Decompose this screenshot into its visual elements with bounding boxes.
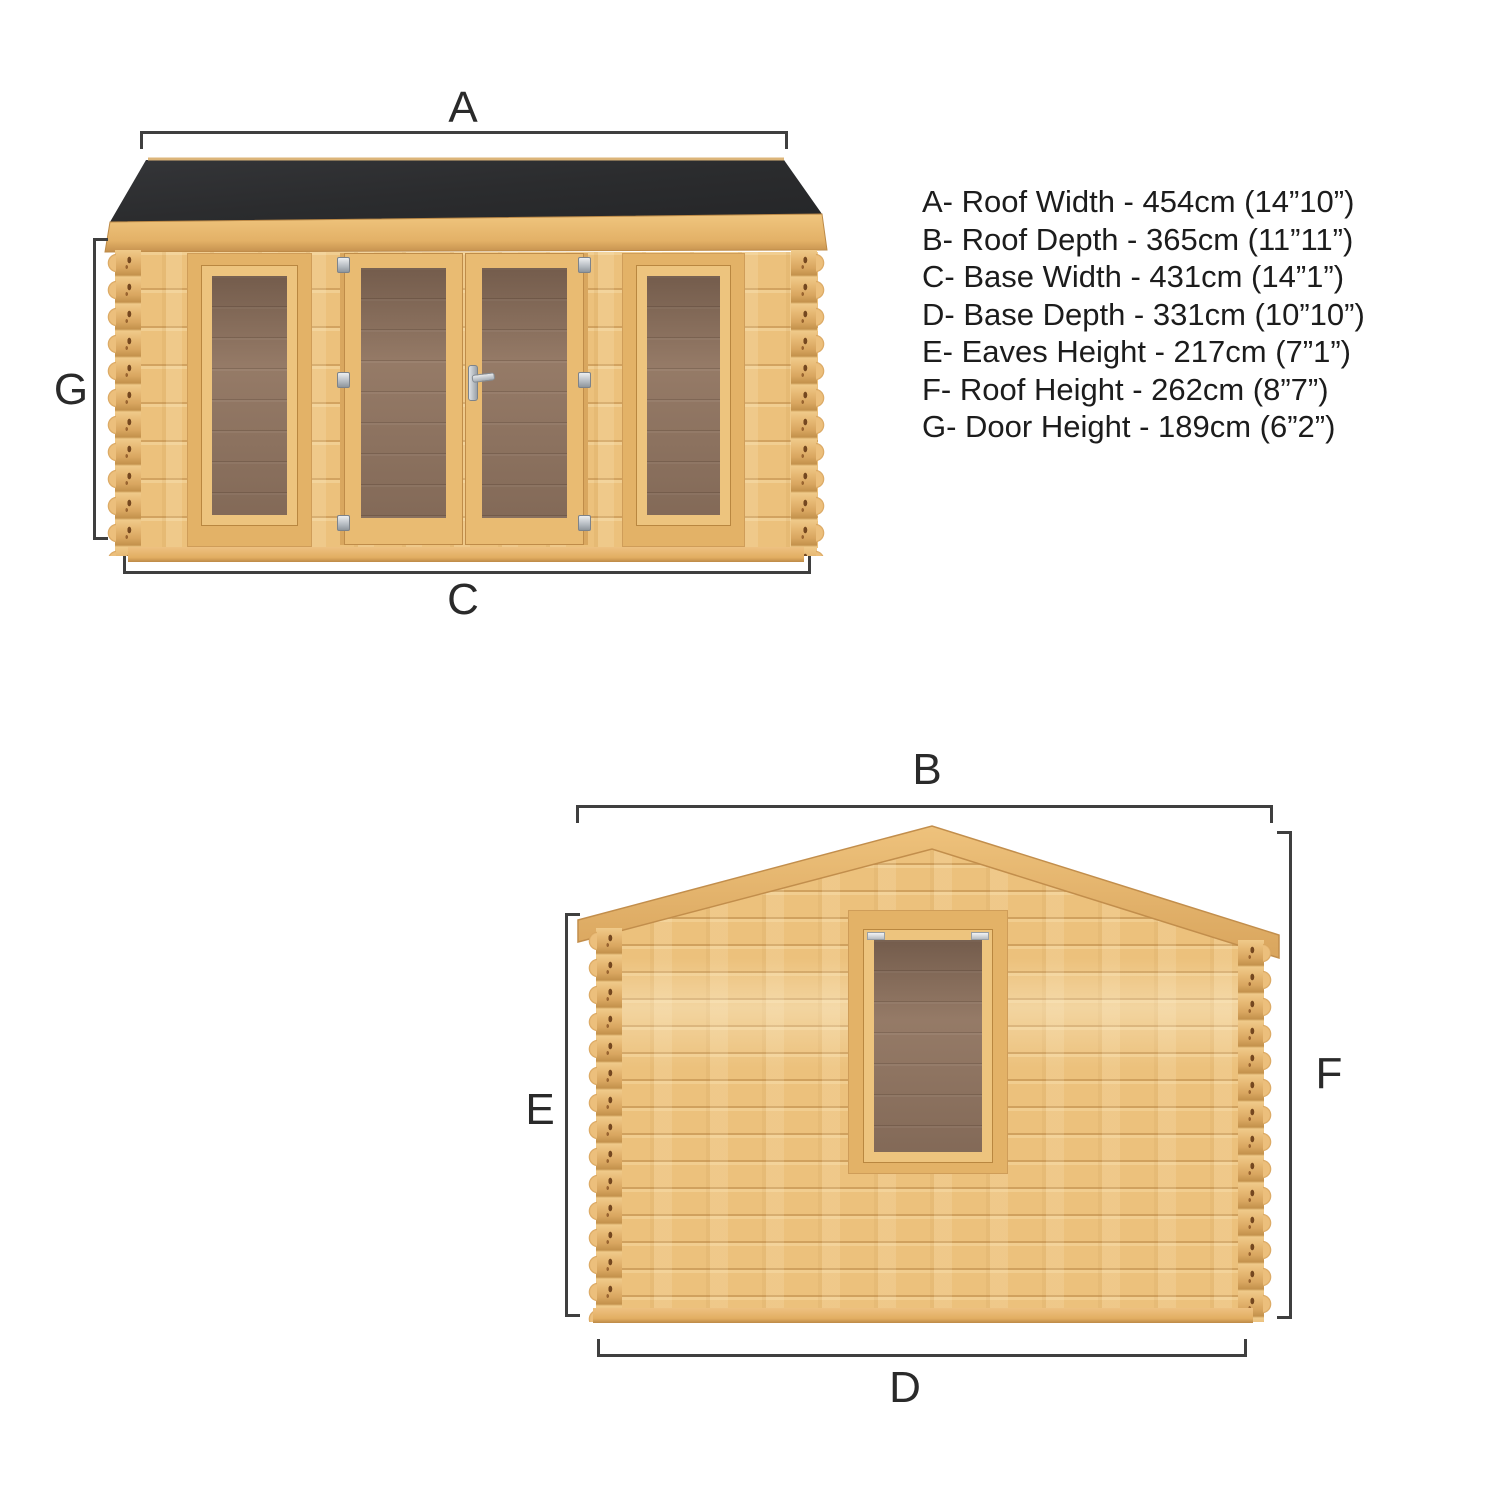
roof-felt-surface bbox=[110, 160, 822, 222]
door-hinge bbox=[337, 257, 350, 273]
side-left-log-corner bbox=[596, 928, 622, 1322]
dim-bracket-g bbox=[93, 238, 111, 540]
double-door-unit bbox=[340, 253, 588, 545]
dim-label-c: C bbox=[436, 578, 490, 622]
dim-label-f: F bbox=[1302, 1052, 1356, 1096]
dim-label-b: B bbox=[900, 748, 954, 792]
front-window-left-sash bbox=[201, 265, 298, 526]
door-handle bbox=[468, 365, 478, 401]
dim-bracket-f bbox=[1274, 831, 1292, 1319]
spec-line-roof-height: F- Roof Height - 262cm (8”7”) bbox=[922, 371, 1462, 409]
spec-line-roof-width: A- Roof Width - 454cm (14”10”) bbox=[922, 183, 1462, 221]
door-leaf-left bbox=[344, 253, 463, 545]
spec-line-eaves-height: E- Eaves Height - 217cm (7”1”) bbox=[922, 333, 1462, 371]
spec-line-base-depth: D- Base Depth - 331cm (10”10”) bbox=[922, 296, 1462, 334]
dim-label-a: A bbox=[436, 86, 490, 130]
dim-label-g: G bbox=[44, 368, 98, 412]
dim-bracket-d bbox=[597, 1339, 1247, 1357]
dim-bracket-a bbox=[140, 131, 788, 149]
door-hinge bbox=[337, 372, 350, 388]
door-leaf-right-glass bbox=[482, 268, 567, 518]
door-leaf-right bbox=[465, 253, 584, 545]
spec-line-base-width: C- Base Width - 431cm (14”1”) bbox=[922, 258, 1462, 296]
spec-line-roof-depth: B- Roof Depth - 365cm (11”11”) bbox=[922, 221, 1462, 259]
side-right-log-corner bbox=[1238, 940, 1264, 1322]
door-hinge bbox=[578, 257, 591, 273]
front-elevation-view: A bbox=[0, 0, 860, 640]
side-window-glass bbox=[874, 940, 982, 1152]
front-window-left bbox=[187, 253, 312, 547]
door-hinge bbox=[578, 372, 591, 388]
side-base-beam bbox=[593, 1308, 1253, 1323]
dim-bracket-e bbox=[565, 913, 583, 1317]
front-left-log-corner bbox=[115, 250, 141, 556]
window-hinge bbox=[867, 932, 885, 940]
dim-bracket-c bbox=[123, 556, 811, 574]
dim-label-e: E bbox=[513, 1088, 567, 1132]
spec-line-door-height: G- Door Height - 189cm (6”2”) bbox=[922, 408, 1462, 446]
dim-label-d: D bbox=[878, 1366, 932, 1410]
front-right-log-corner bbox=[791, 250, 817, 556]
front-window-left-glass bbox=[212, 276, 287, 515]
door-leaf-left-glass bbox=[361, 268, 446, 518]
front-window-right-glass bbox=[647, 276, 720, 515]
front-window-right bbox=[622, 253, 745, 547]
door-hinge bbox=[578, 515, 591, 531]
front-window-right-sash bbox=[636, 265, 731, 526]
dimension-spec-list: A- Roof Width - 454cm (14”10”) B- Roof D… bbox=[922, 183, 1462, 446]
side-window-sash bbox=[863, 929, 993, 1163]
front-roof bbox=[100, 152, 830, 254]
dimension-diagram: A bbox=[0, 0, 1500, 1500]
side-window bbox=[848, 910, 1008, 1174]
window-hinge bbox=[971, 932, 989, 940]
door-hinge bbox=[337, 515, 350, 531]
side-elevation-view: B E bbox=[480, 730, 1400, 1430]
